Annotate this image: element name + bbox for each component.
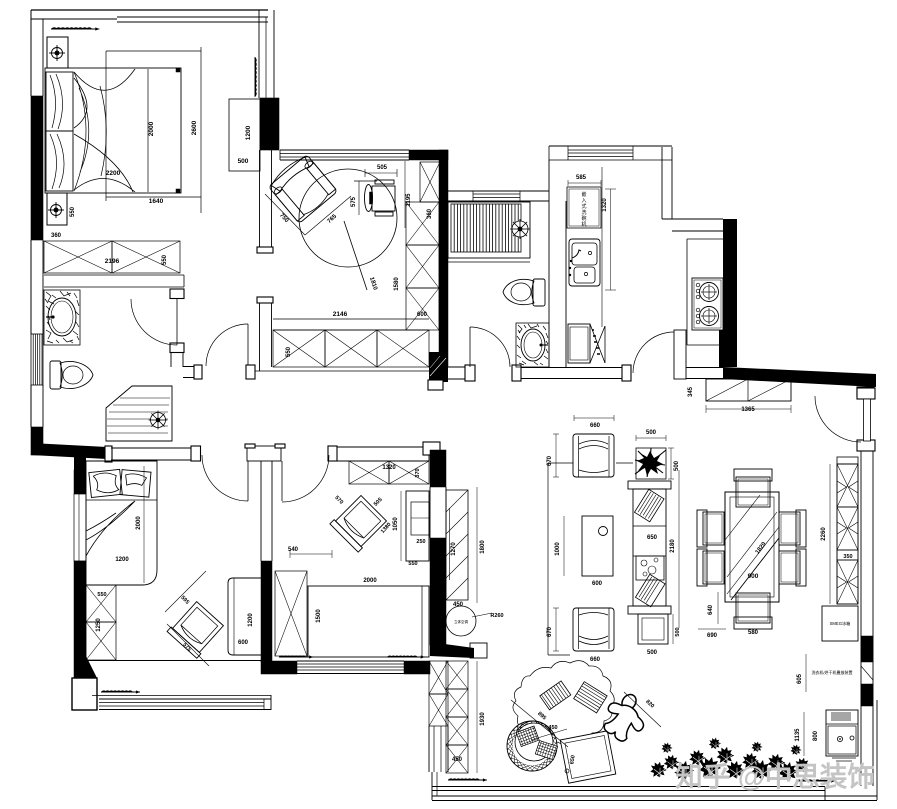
svg-text:900: 900: [748, 573, 759, 580]
svg-text:575: 575: [351, 196, 357, 207]
svg-text:650: 650: [647, 535, 658, 541]
svg-text:1640: 1640: [149, 198, 164, 205]
svg-text:2200: 2200: [106, 170, 121, 177]
svg-text:500: 500: [646, 430, 657, 436]
svg-text:550: 550: [408, 561, 417, 567]
svg-text:640: 640: [708, 604, 714, 615]
svg-text:碗: 碗: [581, 215, 586, 222]
svg-text:550: 550: [70, 206, 76, 217]
svg-text:式: 式: [581, 203, 586, 210]
svg-text:1320: 1320: [382, 465, 396, 471]
svg-text:670: 670: [547, 455, 553, 466]
svg-text:2000: 2000: [148, 121, 155, 136]
svg-text:1200: 1200: [245, 125, 252, 140]
svg-text:585: 585: [576, 175, 587, 181]
svg-text:2196: 2196: [105, 258, 120, 265]
svg-text:500: 500: [674, 460, 680, 471]
svg-text:洗衣机/烘干机叠放装置: 洗衣机/烘干机叠放装置: [811, 669, 852, 675]
svg-text:2146: 2146: [333, 311, 348, 318]
svg-text:1365: 1365: [741, 407, 755, 413]
svg-text:1580: 1580: [394, 277, 400, 291]
svg-text:1250: 1250: [96, 618, 102, 632]
svg-text:嵌: 嵌: [581, 191, 586, 198]
svg-text:540: 540: [288, 547, 299, 553]
svg-text:1195: 1195: [406, 193, 412, 207]
svg-text:800: 800: [813, 730, 819, 741]
svg-text:350: 350: [843, 554, 852, 560]
svg-text:2000: 2000: [363, 578, 377, 584]
svg-text:R260: R260: [490, 613, 503, 619]
svg-text:600: 600: [592, 581, 603, 587]
svg-text:550: 550: [97, 592, 106, 598]
svg-text:500: 500: [647, 650, 658, 656]
svg-text:450: 450: [548, 725, 557, 731]
svg-text:1930: 1930: [480, 712, 486, 726]
svg-text:550: 550: [286, 346, 292, 357]
svg-text:1500: 1500: [316, 609, 322, 623]
svg-text:2180: 2180: [670, 539, 676, 553]
svg-text:2260: 2260: [821, 527, 827, 541]
svg-text:机: 机: [581, 221, 586, 228]
svg-text:1270: 1270: [451, 542, 457, 556]
svg-text:500: 500: [675, 627, 681, 636]
svg-text:505: 505: [377, 165, 388, 171]
svg-text:1200: 1200: [248, 613, 254, 627]
svg-text:洗: 洗: [581, 209, 586, 216]
svg-text:1200: 1200: [115, 557, 129, 563]
svg-text:1000: 1000: [555, 542, 561, 556]
svg-text:1135: 1135: [795, 728, 801, 742]
svg-text:1800: 1800: [480, 540, 486, 554]
svg-text:660: 660: [590, 423, 601, 429]
svg-text:690: 690: [707, 633, 718, 639]
svg-text:2600: 2600: [191, 120, 198, 135]
svg-text:600: 600: [417, 312, 428, 318]
svg-text:600: 600: [238, 640, 249, 646]
svg-text:250: 250: [416, 539, 425, 545]
svg-text:1320: 1320: [602, 198, 608, 212]
svg-text:360: 360: [51, 233, 62, 239]
svg-text:知乎 @中思装饰: 知乎 @中思装饰: [675, 761, 874, 792]
svg-text:345: 345: [688, 386, 694, 397]
svg-text:370: 370: [415, 468, 421, 477]
svg-text:SMEG冰箱: SMEG冰箱: [830, 620, 851, 627]
svg-text:450: 450: [452, 757, 463, 763]
svg-text:550: 550: [162, 254, 168, 265]
svg-text:580: 580: [748, 630, 759, 636]
svg-text:500: 500: [238, 158, 249, 165]
svg-text:2000: 2000: [136, 516, 142, 530]
svg-text:660: 660: [590, 657, 601, 663]
svg-text:605: 605: [797, 673, 803, 684]
svg-text:670: 670: [547, 626, 553, 637]
svg-text:立体空调: 立体空调: [454, 619, 468, 624]
svg-text:1050: 1050: [393, 517, 399, 531]
